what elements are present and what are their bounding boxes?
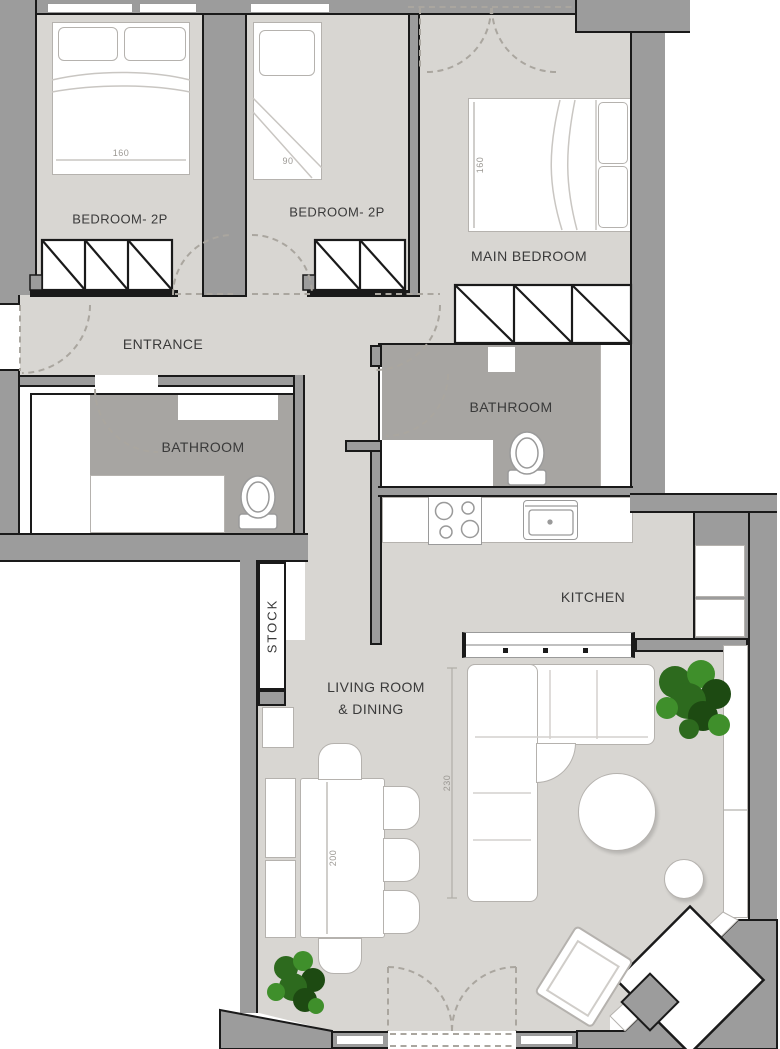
bath-right-sink-counter bbox=[382, 440, 493, 488]
window bbox=[520, 1035, 573, 1045]
window bbox=[250, 3, 330, 13]
floor-plan: BEDROOM- 2P BEDROOM- 2P MAIN BEDROOM ENT… bbox=[0, 0, 780, 1049]
bath-right-stool bbox=[488, 347, 515, 372]
wall-corridor-kitchen-b bbox=[370, 440, 382, 645]
window-band-right bbox=[723, 645, 748, 918]
dining-chair bbox=[318, 743, 362, 780]
wall-bath-right-bottom bbox=[378, 486, 633, 497]
wall-kitchen-right-band bbox=[630, 493, 777, 513]
window bbox=[336, 1035, 384, 1045]
kitchen-niche bbox=[695, 599, 745, 637]
dining-chair bbox=[383, 838, 420, 882]
wall-corridor-kitchen-a bbox=[370, 345, 382, 367]
table-dimension: 200 bbox=[328, 850, 338, 867]
dining-chair bbox=[318, 938, 362, 974]
pillow bbox=[58, 27, 118, 61]
living-label-line2: & DINING bbox=[338, 701, 403, 717]
sideboard bbox=[462, 632, 635, 658]
bath-right-shower bbox=[600, 345, 631, 488]
pillow bbox=[598, 166, 628, 228]
bath-left-door-gap bbox=[95, 375, 158, 387]
entry-door-recess bbox=[0, 303, 20, 371]
bed2-dimension: 90 bbox=[282, 156, 293, 166]
bedroom1-label: BEDROOM- 2P bbox=[72, 212, 167, 227]
cabinet bbox=[265, 860, 296, 938]
dining-chair bbox=[383, 890, 420, 934]
window bbox=[47, 3, 133, 13]
wall-bath-left-right bbox=[293, 375, 305, 545]
dining-chair bbox=[383, 786, 420, 830]
wall-bedroom1-bottom bbox=[30, 290, 178, 297]
cabinet bbox=[262, 707, 294, 748]
cabinet bbox=[265, 778, 296, 858]
dining-table bbox=[300, 778, 385, 938]
wall-right-lower bbox=[748, 513, 777, 920]
wall-entrance-bottom bbox=[20, 375, 305, 387]
window bbox=[139, 3, 197, 13]
main-bedroom-label: MAIN BEDROOM bbox=[471, 248, 587, 264]
stock-label: STOCK bbox=[265, 599, 280, 654]
pillow bbox=[124, 27, 186, 61]
wall-bedroom2-bottom bbox=[307, 290, 408, 297]
wall-band-left bbox=[0, 533, 308, 562]
wall-right-upper bbox=[630, 33, 665, 493]
bath-left-tub bbox=[90, 475, 225, 533]
wall-bedroom-divider bbox=[202, 15, 247, 297]
living-label-line1: LIVING ROOM bbox=[327, 679, 425, 695]
entrance-floor bbox=[20, 293, 420, 375]
bathroom-right-label: BATHROOM bbox=[469, 399, 552, 415]
stove bbox=[428, 494, 482, 545]
kitchen-label: KITCHEN bbox=[561, 589, 625, 605]
kitchen-sink bbox=[523, 500, 578, 540]
wall-corridor-stub bbox=[345, 440, 382, 452]
stock-wall-stub bbox=[258, 690, 286, 706]
bathroom-left-label: BATHROOM bbox=[161, 439, 244, 455]
sofa-dimension: 230 bbox=[442, 775, 452, 792]
bath-left-counter bbox=[178, 395, 278, 420]
wall-top-right-block bbox=[575, 0, 690, 33]
wall-living-left bbox=[240, 560, 258, 1013]
kitchen-counter bbox=[382, 497, 633, 543]
kitchen-niche bbox=[695, 545, 745, 597]
wall-left-upper bbox=[0, 0, 37, 295]
pillow bbox=[259, 30, 315, 76]
coffee-table-large bbox=[578, 773, 656, 851]
bedroom2-label: BEDROOM- 2P bbox=[289, 205, 384, 220]
coffee-table-small bbox=[664, 859, 704, 899]
sofa-left-seat bbox=[467, 664, 538, 902]
entrance-label: ENTRANCE bbox=[123, 336, 203, 352]
bed1-dimension: 160 bbox=[113, 148, 130, 158]
main-bed-dimension: 160 bbox=[475, 157, 485, 174]
wall-bedroom2-divider bbox=[408, 15, 420, 297]
pillow bbox=[598, 102, 628, 164]
